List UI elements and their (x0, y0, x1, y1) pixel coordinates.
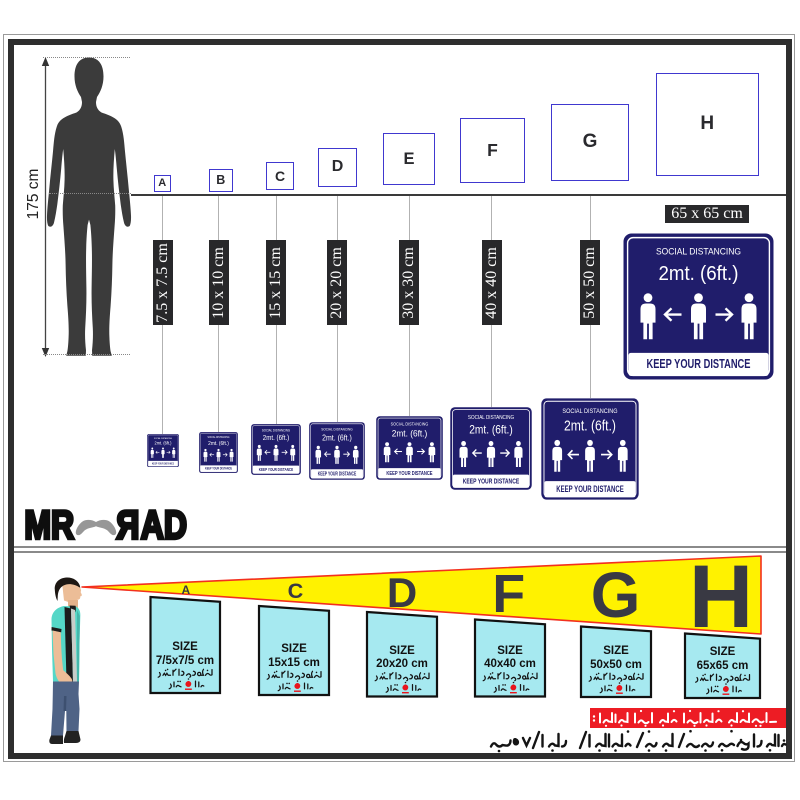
svg-text:MR: MR (24, 502, 74, 547)
svg-text:KEEP YOUR DISTANCE: KEEP YOUR DISTANCE (647, 356, 751, 371)
svg-text:2mt. (6ft.): 2mt. (6ft.) (659, 262, 739, 285)
svg-text:R: R (116, 502, 139, 547)
svg-text:SOCIAL DISTANCING: SOCIAL DISTANCING (656, 247, 741, 258)
svg-text:AD: AD (141, 502, 187, 547)
